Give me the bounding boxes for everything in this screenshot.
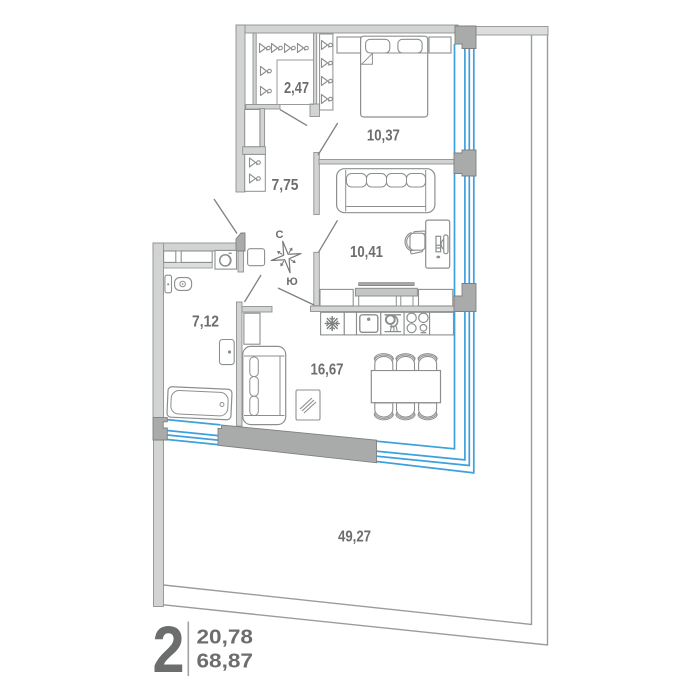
svg-text:2: 2 <box>153 613 185 686</box>
svg-text:49,27: 49,27 <box>338 529 371 546</box>
svg-text:10,37: 10,37 <box>367 128 400 145</box>
svg-text:10,41: 10,41 <box>350 244 383 261</box>
svg-text:7,12: 7,12 <box>192 313 219 330</box>
svg-text:68,87: 68,87 <box>197 649 254 672</box>
svg-text:7,75: 7,75 <box>272 177 299 194</box>
svg-text:С: С <box>276 229 284 241</box>
svg-text:Ю: Ю <box>286 276 297 288</box>
svg-text:2,47: 2,47 <box>284 80 309 97</box>
svg-text:20,78: 20,78 <box>197 625 254 648</box>
svg-text:16,67: 16,67 <box>311 361 344 378</box>
